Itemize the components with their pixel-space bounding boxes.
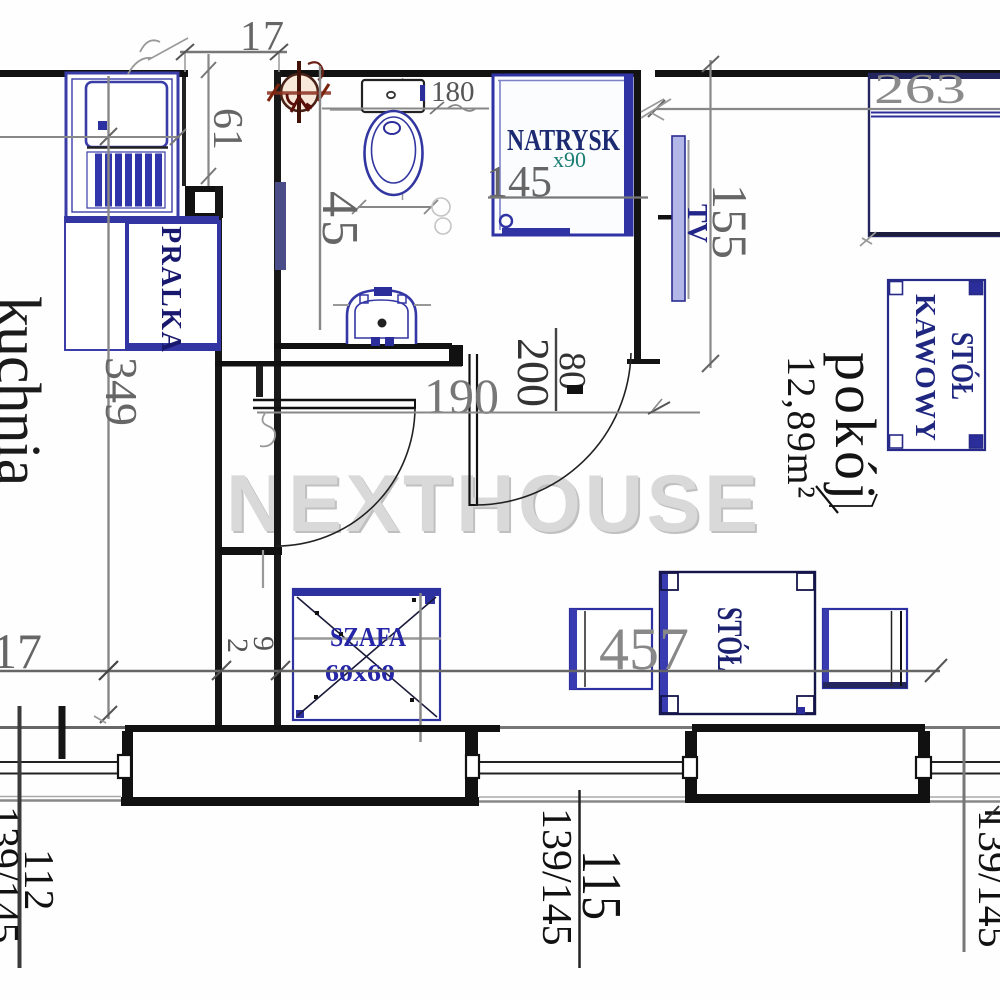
svg-text:457: 457 [599,616,689,682]
svg-text:PRALKA: PRALKA [155,226,186,353]
svg-text:9: 9 [247,636,280,651]
svg-text:139/145: 139/145 [969,810,1000,948]
svg-text:190: 190 [424,368,499,424]
svg-text:80: 80 [551,352,593,390]
svg-text:139/145: 139/145 [533,808,579,946]
svg-text:60x60: 60x60 [325,661,395,687]
svg-text:KAWOWY: KAWOWY [909,294,941,442]
svg-text:61: 61 [204,108,250,150]
svg-text:349: 349 [96,357,147,426]
svg-text:145: 145 [486,157,552,206]
svg-text:17: 17 [0,623,42,679]
svg-text:x90: x90 [553,147,586,172]
svg-text:139/145: 139/145 [0,806,26,944]
svg-text:155: 155 [702,184,758,259]
svg-text:STÓŁ: STÓŁ [945,332,981,400]
svg-text:45: 45 [311,191,368,249]
svg-text:263: 263 [874,66,966,112]
svg-text:pokój: pokój [823,352,888,504]
svg-text:180: 180 [431,76,475,108]
svg-text:kuchnia: kuchnia [0,296,52,486]
svg-text:STÓŁ: STÓŁ [710,607,750,671]
svg-text:SZAFA: SZAFA [330,622,406,652]
svg-text:12,89m²: 12,89m² [779,356,824,500]
